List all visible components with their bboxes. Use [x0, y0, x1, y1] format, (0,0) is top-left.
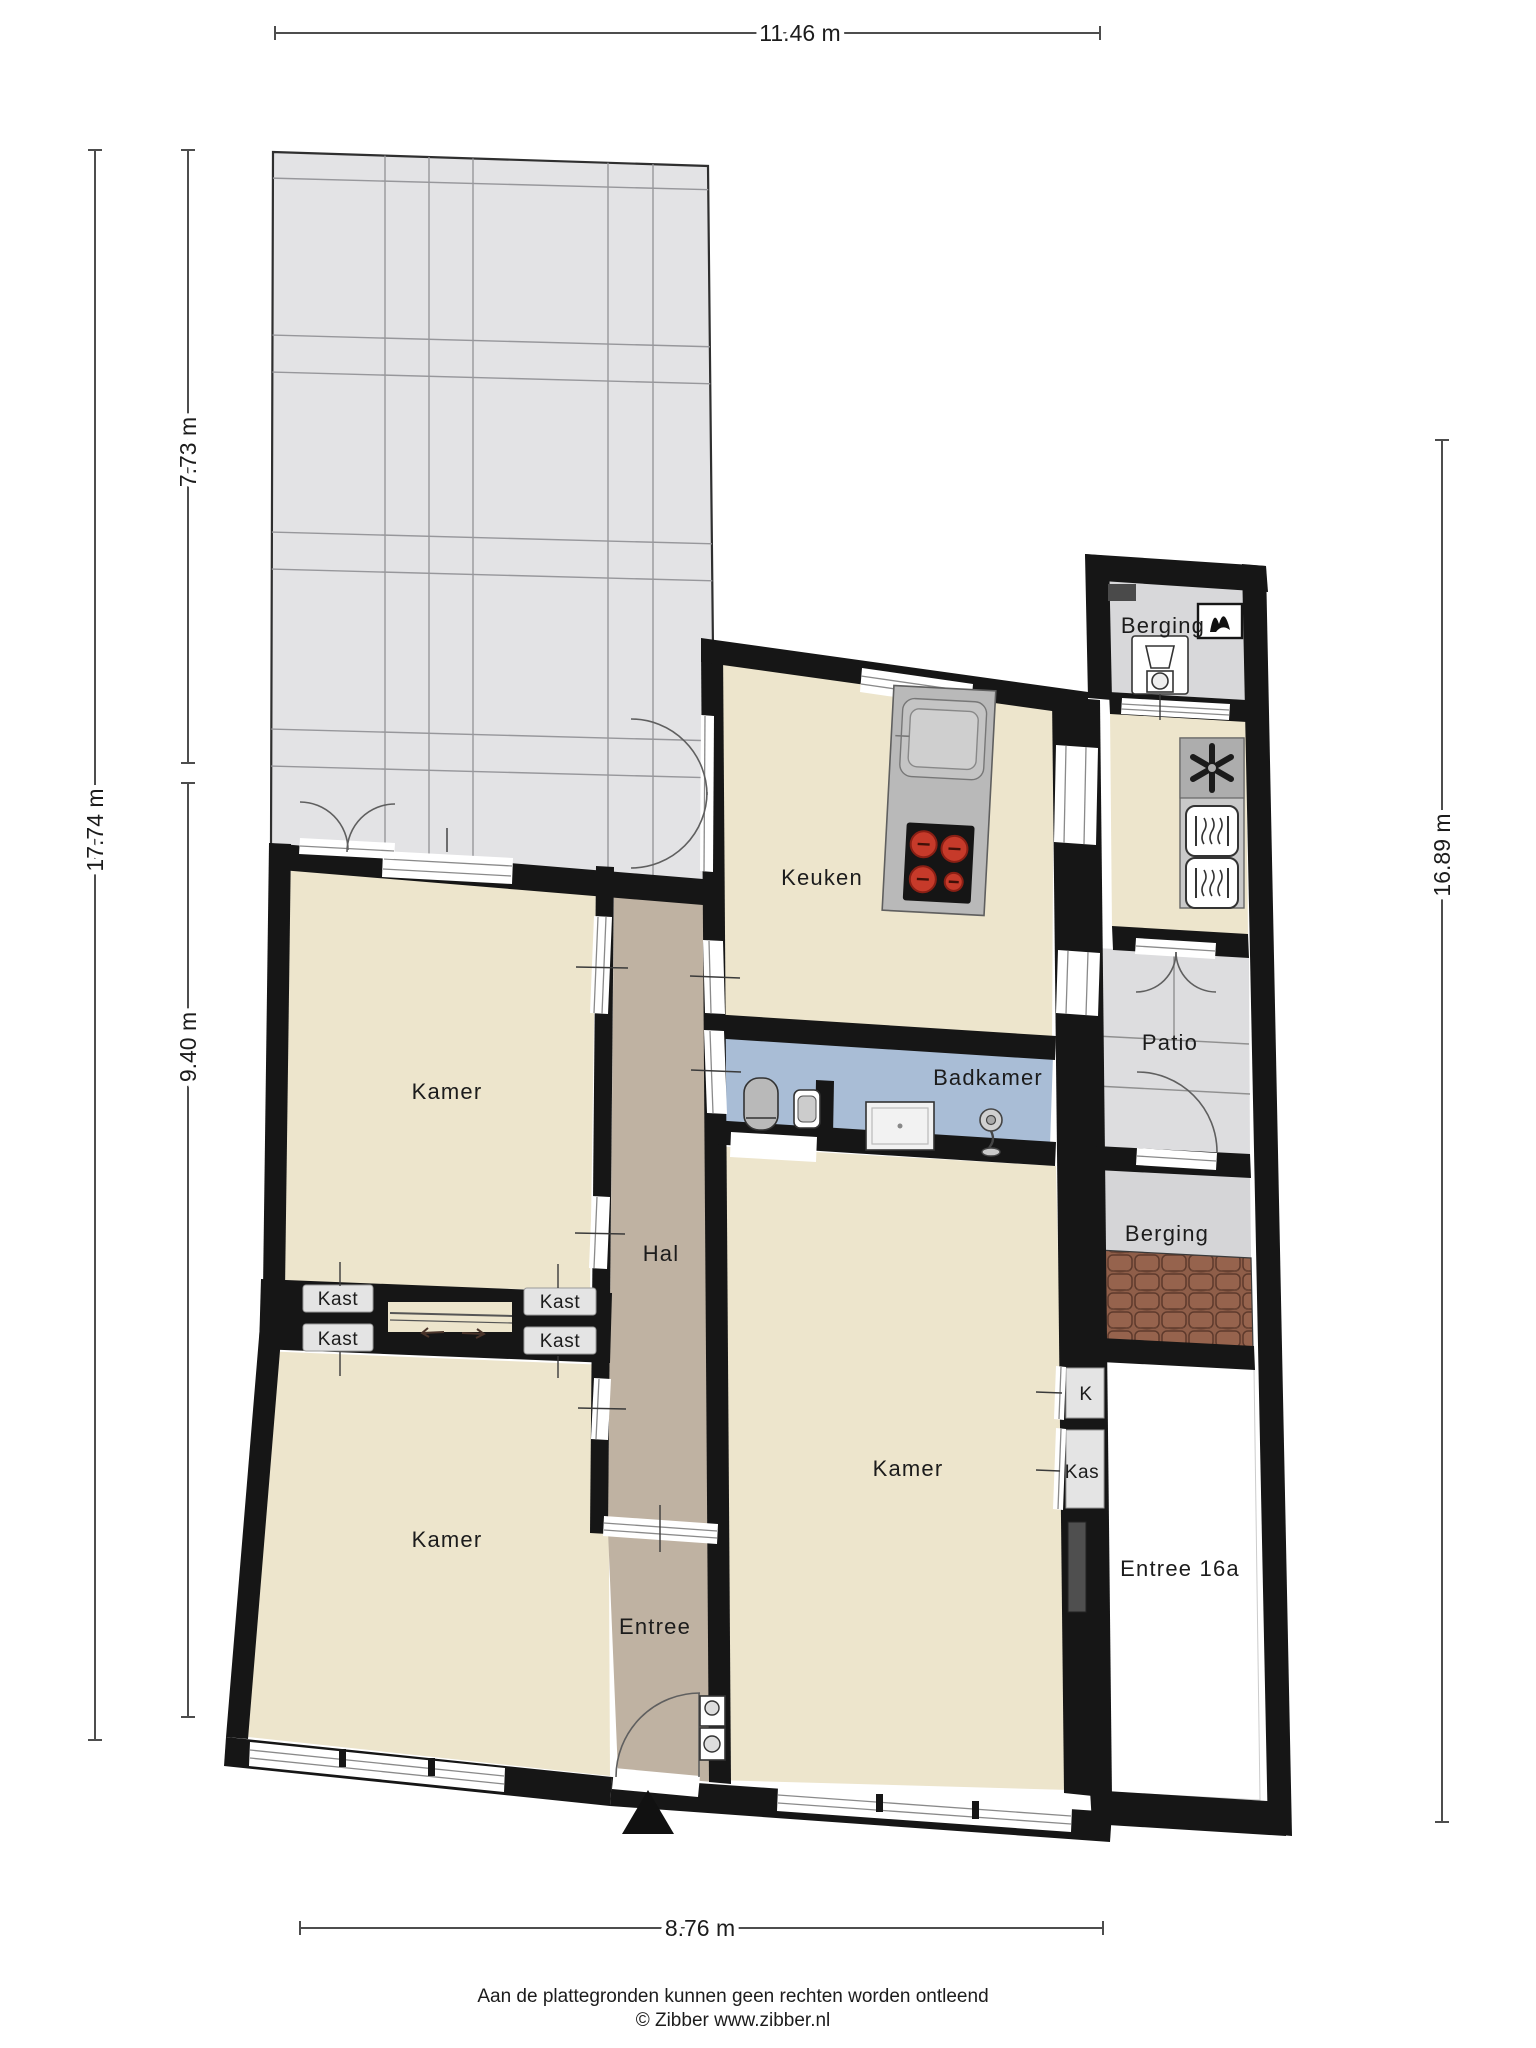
label-berging-mid: Berging — [1125, 1221, 1209, 1246]
footer-disclaimer: Aan de plattegronden kunnen geen rechten… — [477, 1986, 988, 2007]
label-keuken: Keuken — [781, 865, 863, 890]
dim-left-upper-label: 7.73 m — [175, 417, 201, 487]
kitchen-island-sink-icon — [893, 698, 987, 781]
hal-floor — [608, 888, 709, 1532]
dim-bottom-label: 8.76 m — [665, 1915, 735, 1941]
wall-right-section-west — [1085, 554, 1112, 700]
washbasin-icon — [794, 1090, 820, 1128]
dim-right-label: 16.89 m — [1429, 813, 1455, 896]
label-patio: Patio — [1142, 1030, 1198, 1055]
label-kast: Kast — [318, 1329, 359, 1350]
entree-floor — [608, 1531, 713, 1782]
dim-left-total: 17.74 m — [82, 150, 108, 1740]
label-berging-top: Berging — [1121, 613, 1205, 638]
label-kamer-right: Kamer — [873, 1456, 944, 1481]
label-closet-k: K — [1079, 1384, 1092, 1405]
toilet-icon — [744, 1078, 778, 1130]
shower-tray-icon — [866, 1102, 934, 1150]
dim-right: 16.89 m — [1429, 440, 1455, 1822]
label-kast: Kast — [540, 1331, 581, 1352]
footer: Aan de plattegronden kunnen geen rechten… — [477, 1986, 988, 2031]
label-kast: Kast — [318, 1289, 359, 1310]
meter-boxes-icon — [700, 1696, 725, 1760]
dim-left-upper: 7.73 m — [175, 150, 201, 763]
dark-door-panel — [1068, 1522, 1086, 1612]
roof-tiles — [1098, 1250, 1253, 1348]
footer-credit: © Zibber www.zibber.nl — [636, 2010, 831, 2031]
cooktop-icon — [903, 822, 975, 903]
window-keuken-east-2 — [1056, 950, 1100, 1016]
label-kast: Kast — [540, 1292, 581, 1313]
dim-left-lower-label: 9.40 m — [175, 1012, 201, 1082]
oven-icon — [1186, 858, 1238, 908]
window-keuken-east-1 — [1054, 745, 1098, 845]
vent-shaft — [1108, 584, 1136, 601]
label-kamer-bottom-left: Kamer — [412, 1527, 483, 1552]
dim-left-lower: 9.40 m — [175, 783, 201, 1717]
label-hal: Hal — [643, 1241, 680, 1266]
floor-plan-canvas: Berging Keuken Patio Badkamer Berging Ka… — [0, 0, 1536, 2048]
label-badkamer: Badkamer — [933, 1065, 1043, 1090]
label-entree: Entree — [619, 1614, 691, 1639]
dim-bottom: 8.76 m — [300, 1915, 1103, 1941]
keuken-floor — [703, 660, 1054, 1040]
label-kamer-top-left: Kamer — [412, 1079, 483, 1104]
kitchen-island — [882, 685, 996, 915]
label-entree-16a: Entree 16a — [1120, 1556, 1240, 1581]
label-closet-kas: Kas — [1065, 1462, 1100, 1483]
dim-left-total-label: 17.74 m — [82, 788, 108, 871]
terrace-floor — [271, 152, 717, 897]
bath-niche — [730, 1132, 817, 1162]
kamer-bottom-left-floor — [248, 1351, 610, 1776]
dim-top: 11.46 m — [275, 20, 1100, 46]
oven-icon — [1186, 806, 1238, 856]
terrace-garden — [268, 150, 720, 900]
dim-top-label: 11.46 m — [759, 20, 840, 46]
pantry-counter — [1180, 738, 1244, 908]
